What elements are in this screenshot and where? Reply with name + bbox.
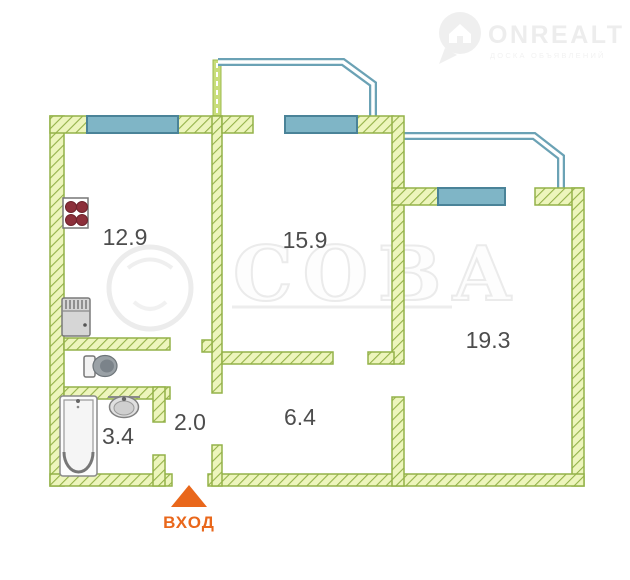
bathtub-icon [60, 396, 97, 476]
wall-bathroom-right-upper [153, 387, 165, 422]
balcony-outline-inner [404, 136, 561, 190]
wall-top-room2-left [392, 188, 438, 205]
room-label-kitchen: 12.9 [103, 224, 148, 250]
wall-kitchen-bottom [64, 338, 170, 350]
wall-kitchen-bottom-stub [202, 340, 212, 352]
balcony-room-1 [213, 60, 373, 117]
wall-top-room1-left [222, 116, 253, 133]
brand-name: ONREALT [488, 21, 624, 49]
fridge-icon [62, 298, 90, 336]
room-label-room-2: 19.3 [466, 327, 511, 353]
wall-divider-room1-room2 [392, 116, 404, 364]
brand-logo: ONREALT ДОСКА ОБЪЯВЛЕНИЙ [439, 12, 624, 64]
wall-bathroom-right-lower [153, 455, 165, 486]
wall-right [572, 188, 584, 486]
entrance-label: ВХОД [163, 513, 215, 532]
wall-room1-hall-stub [368, 352, 394, 364]
entrance-arrow-icon [171, 485, 207, 507]
wall-divider-kitchen-room1 [212, 116, 222, 393]
sink-icon [108, 397, 140, 418]
wall-top-room1-right [357, 116, 393, 133]
window-kitchen [87, 116, 178, 133]
entrance-marker: ВХОД [163, 485, 215, 532]
balcony-outline [404, 136, 561, 190]
wall-top-kitchen-left [50, 116, 87, 133]
floorplan-page: СОВА ONREALT ДОСКА ОБЪЯВЛЕНИЙ [0, 0, 630, 580]
windows [87, 116, 505, 205]
wall-hall-room2-lower [392, 397, 404, 486]
room-label-room-1: 15.9 [283, 227, 328, 253]
window-room-1 [285, 116, 357, 133]
toilet-icon [84, 356, 117, 378]
room-label-hallway: 6.4 [284, 404, 316, 430]
balcony-outline [218, 62, 373, 116]
stove-icon [63, 198, 88, 228]
room-label-corridor: 2.0 [174, 409, 206, 435]
window-room-2 [438, 188, 505, 205]
balcony-room-2 [404, 136, 561, 190]
location-pin-house-icon [439, 12, 481, 64]
floorplan-canvas: СОВА ONREALT ДОСКА ОБЪЯВЛЕНИЙ [0, 0, 630, 580]
wall-room1-hall [222, 352, 333, 364]
watermark-text: СОВА [233, 230, 523, 318]
wall-corridor-hall-lower [212, 445, 222, 486]
brand-tagline: ДОСКА ОБЪЯВЛЕНИЙ [490, 51, 606, 60]
room-label-bathroom: 3.4 [102, 423, 134, 449]
